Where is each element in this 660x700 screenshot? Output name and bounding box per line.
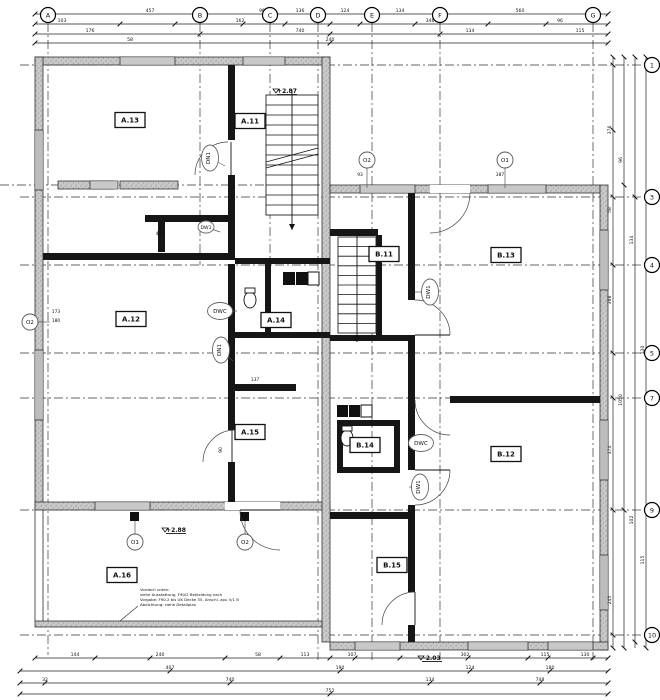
opening-marker-label: O2 (241, 540, 249, 546)
kitchen-appliance (283, 272, 295, 285)
interior-wall (158, 222, 165, 252)
dim-number: 102 (629, 516, 635, 525)
door-swing-arc (430, 193, 470, 233)
fixture-marker-label: DWC (213, 309, 227, 315)
dim-number-inner: 90 (218, 447, 224, 453)
interior-wall (337, 467, 400, 473)
room-label: B.14 (356, 442, 374, 450)
dim-number: 457 (146, 8, 155, 14)
dim-number: 190 (336, 665, 345, 671)
dim-number: 376 (607, 126, 613, 135)
stair-arrow (289, 224, 295, 230)
stairs-layer (266, 90, 376, 342)
exterior-wall (35, 621, 322, 627)
dim-number: 134 (629, 236, 635, 245)
interior-wall (394, 420, 400, 473)
dim-number: 240 (156, 652, 165, 658)
opening-marker-label: O2 (363, 158, 371, 164)
dim-number: 748 (536, 677, 545, 683)
elevation-value: -2.03 (423, 655, 440, 662)
dim-number: 240 (326, 37, 335, 43)
dim-number: 740 (226, 677, 235, 683)
kitchen-appliance (349, 405, 360, 417)
door-opening (225, 502, 280, 510)
exterior-wall (322, 57, 330, 642)
column (130, 512, 139, 521)
fixture-marker-label: DN1 (217, 344, 223, 356)
interior-wall (408, 193, 415, 300)
dim-number: 124 (341, 8, 350, 14)
grid-bubble-label: 3 (650, 193, 654, 201)
door-swing-arc (203, 430, 235, 462)
grid-bubble-label: 1 (650, 61, 654, 69)
kitchen-sink (308, 272, 319, 285)
room-label: B.12 (497, 451, 515, 459)
grid-bubble-label: 7 (650, 394, 654, 402)
interior-wall (43, 253, 235, 260)
floor-plan-drawing: 4579613612413456010316234696176740134115… (0, 0, 660, 700)
dim-number: 115 (640, 556, 646, 565)
room-label: A.14 (267, 317, 285, 325)
room-label: B.11 (375, 251, 393, 259)
grid-bubble-label: C (268, 11, 273, 19)
floor-plan-canvas: 4579613612413456010316234696176740134115… (0, 0, 660, 700)
dim-number-inner: 93 (357, 172, 363, 178)
toilet-tank (245, 288, 255, 293)
interior-wall (330, 335, 410, 341)
room-label: A.11 (241, 118, 259, 126)
note-line: Abdichtung: siehe Detailplan (140, 602, 197, 607)
note-layer: Vordach unten:siehe Ausstattung, F90/2 B… (120, 587, 239, 621)
dim-number: 180 (546, 665, 555, 671)
interior-walls-layer (43, 65, 600, 642)
room-label: A.15 (241, 429, 259, 437)
grid-bubble-label: 4 (650, 261, 654, 269)
dim-number: 368 (607, 296, 613, 305)
exterior-wall (35, 502, 330, 510)
exterior-walls-layer (35, 57, 608, 650)
toilet (244, 292, 256, 308)
interior-wall (228, 175, 235, 255)
room-label: A.12 (122, 316, 140, 324)
dim-number: 58 (127, 37, 133, 43)
interior-wall (235, 258, 330, 264)
grid-bubble-label: D (315, 11, 320, 19)
dim-number: 144 (71, 652, 80, 658)
dim-number: 115 (541, 652, 550, 658)
grid-bubble-label: B (198, 11, 202, 19)
interior-wall (228, 65, 235, 140)
dim-number: 58 (255, 652, 261, 658)
dim-number: 103 (58, 18, 67, 24)
dim-number: 96 (557, 18, 563, 24)
dim-number: 58 (607, 207, 613, 213)
room-label: A.13 (121, 117, 139, 125)
fixture-marker-label: DN1 (206, 152, 212, 164)
dim-number: 1050 (618, 394, 624, 406)
dim-number: 134 (426, 677, 435, 683)
door-swing-arc (415, 400, 450, 435)
dim-number: 752 (326, 688, 335, 694)
elevation-value: +2.88 (166, 527, 186, 534)
dim-number: 107 (348, 652, 357, 658)
dim-number-inner: 137 (251, 377, 260, 383)
dim-number: 134 (396, 8, 405, 14)
dim-number: 245 (607, 596, 613, 605)
dim-number: 407 (166, 665, 175, 671)
dim-number: 374 (607, 446, 613, 455)
interior-wall (145, 215, 228, 222)
grid-bubble-label: 5 (650, 349, 654, 357)
dim-number: 124 (466, 665, 475, 671)
exterior-wall (120, 181, 178, 189)
fixture-marker-label: DW1 (416, 480, 422, 494)
opening-marker-label: O2 (26, 320, 34, 326)
dim-number: 302 (461, 652, 470, 658)
opening-marker-label: O1 (131, 540, 139, 546)
opening-marker-label: O1 (501, 158, 509, 164)
door-swing-arc (382, 592, 415, 625)
dim-number: 134 (466, 28, 475, 34)
dim-number: 115 (576, 28, 585, 34)
grid-bubble-label: E (370, 11, 374, 19)
kitchen-appliance (296, 272, 308, 285)
fixture-marker-label: DW1 (426, 285, 432, 299)
interior-wall (408, 505, 415, 592)
room-label: B.13 (497, 252, 515, 260)
dim-number: 130 (581, 652, 590, 658)
fixtures-layer (130, 272, 372, 521)
kitchen-appliance (337, 405, 348, 417)
exterior-wall (35, 57, 330, 65)
door-swing-arc (415, 300, 450, 335)
dim-number-inner: 387 (496, 172, 505, 178)
interior-wall (235, 384, 296, 391)
interior-wall (235, 332, 330, 338)
terrace-wall (35, 510, 43, 621)
interior-wall (450, 396, 600, 403)
grid-bubble-label: F (438, 11, 442, 19)
note-leader (120, 606, 138, 621)
interior-wall (228, 462, 235, 502)
room-label: A.16 (113, 572, 131, 580)
dim-number-inner: 173 (52, 309, 61, 315)
elevation-value: +2.87 (277, 88, 297, 95)
fixture-marker-label: DW1 (200, 225, 211, 231)
grid-bubble-label: 10 (648, 631, 656, 639)
interior-wall (337, 420, 400, 426)
dim-number: 740 (296, 28, 305, 34)
dim-number-inner: 458 (156, 231, 165, 237)
grid-bubble-label: 9 (650, 506, 654, 514)
exterior-wall (35, 57, 43, 510)
interior-wall (330, 512, 408, 519)
dim-number: 136 (296, 8, 305, 14)
toilet-tank (342, 426, 352, 431)
interior-wall (408, 625, 415, 642)
fixture-marker-label: DWC (414, 441, 428, 447)
dim-number: 32 (42, 677, 48, 683)
dim-number: 176 (86, 28, 95, 34)
dim-number: 96 (618, 157, 624, 163)
kitchen-sink (361, 405, 372, 417)
dim-number: 162 (236, 18, 245, 24)
interior-wall (330, 229, 378, 236)
dim-number: 113 (301, 652, 310, 658)
grid-bubble-label: A (46, 11, 51, 19)
doors-layer (195, 142, 470, 625)
room-label: B.15 (383, 562, 401, 570)
dim-number-inner: 180 (52, 318, 61, 324)
dimensions-layer: 4579613612413456010316234696176740134115… (18, 8, 649, 696)
windows-layer (35, 57, 608, 650)
dim-number: 560 (516, 8, 525, 14)
grid-bubble-label: G (590, 11, 595, 19)
door-opening (430, 185, 470, 193)
